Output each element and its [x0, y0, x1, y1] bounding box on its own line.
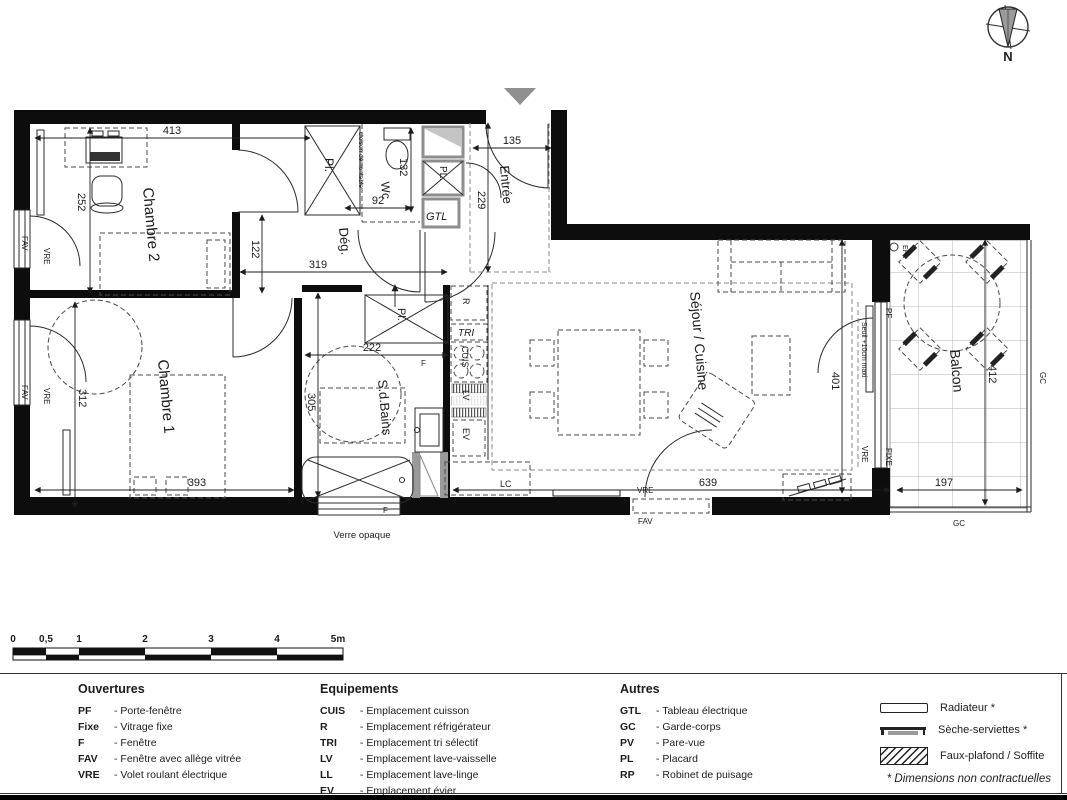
scale-tick: 4: [274, 634, 280, 645]
dim-92: 92: [372, 195, 384, 207]
dim-401: 401: [829, 372, 841, 390]
dim-229: 229: [475, 191, 487, 209]
seuil-note: Seuil +10cm maxi: [860, 322, 867, 378]
legend-autres: Autres GTL- Tableau électrique GC- Garde…: [620, 682, 753, 783]
room-label-chambre2: Chambre 2: [139, 187, 162, 262]
room-label-degagement: Dég.: [336, 227, 353, 256]
toilet-tank: [384, 128, 410, 140]
legend-item: F- Fenêtre: [78, 735, 241, 751]
pf-label: PF: [884, 308, 893, 318]
evier-label: EV: [461, 428, 471, 440]
legend-section-title: Autres: [620, 682, 753, 696]
room-label-entree: Entrée: [497, 165, 515, 204]
dim-222: 222: [363, 342, 381, 354]
dim-197: 197: [935, 477, 953, 489]
room-label-chambre1: Chambre 1: [154, 359, 177, 434]
lv-label: LV: [461, 390, 471, 400]
bathroom-door: [412, 452, 448, 498]
legend-symbol-faux-plafond: Faux-plafond / Soffite: [880, 747, 1044, 765]
lc-label: LC: [500, 479, 512, 489]
dim-135: 135: [503, 135, 521, 147]
chambre2-furniture: [37, 128, 230, 295]
legend-item: Fixe- Vitrage fixe: [78, 719, 241, 735]
tri-label: TRI: [458, 328, 474, 339]
fridge-label: R: [461, 298, 471, 305]
dim-252: 252: [75, 193, 87, 211]
towel-rail-swatch-icon: [880, 724, 926, 736]
legend-item: VRE- Volet roulant électrique: [78, 767, 241, 783]
room-label-sdb: S.d.Bains: [375, 379, 395, 436]
entrance-arrow-icon: [504, 88, 536, 105]
room-label-sejour: Séjour / Cuisine: [687, 291, 712, 391]
vre-label: VRE: [42, 248, 51, 264]
washbasin: [415, 408, 444, 452]
fixe-label: FIXE: [884, 448, 893, 466]
dim-122: 122: [249, 240, 261, 258]
ep-label: EP: [901, 245, 908, 255]
vre-label: VRE: [860, 446, 869, 462]
dim-305: 305: [305, 393, 317, 411]
kitchen-strip: R TRI CUIS LV EV LC: [445, 285, 530, 495]
bathtub: [302, 457, 413, 503]
radiator-swatch-icon: [880, 703, 928, 713]
sejour-furniture: [530, 240, 851, 500]
legend-item: PF- Porte-fenêtre: [78, 703, 241, 719]
legend: Ouvertures PF- Porte-fenêtre Fixe- Vitra…: [0, 673, 1067, 794]
floor-plan-page: N: [0, 0, 1067, 800]
window-f-bathroom: F Verre opaque: [318, 497, 400, 541]
gtl-label: GTL: [426, 211, 447, 223]
dimensions: 413 252 122 319 132 92 135 229 312 393 2…: [35, 123, 1022, 508]
legend-item: CUIS- Emplacement cuisson: [320, 703, 545, 719]
bottom-rule: [0, 793, 1067, 794]
coffee-table: [752, 336, 790, 395]
radiator: [553, 490, 620, 496]
dimensions-disclaimer: * Dimensions non contractuelles: [887, 773, 1051, 785]
radiator: [63, 430, 70, 495]
scale-tick: 5m: [331, 634, 346, 645]
f-label: F: [383, 506, 388, 515]
sofa: [718, 240, 845, 292]
legend-item: PL- Placard: [620, 751, 753, 767]
verre-opaque-note: Verre opaque: [333, 530, 390, 541]
bed-double: [130, 375, 225, 498]
soffit-zone: [492, 283, 852, 470]
legend-item: R- Emplacement réfrigérateur: [320, 719, 545, 735]
closet-top: Pl.: [305, 126, 360, 215]
dim-413: 413: [163, 125, 181, 137]
closet-label: Pl.: [322, 158, 336, 172]
gc-label: GC: [1038, 372, 1047, 384]
armchair: [677, 371, 756, 450]
scale-tick: 1: [76, 634, 82, 645]
legend-equipements: Equipements CUIS- Emplacement cuisson R-…: [320, 682, 545, 800]
bed-single: [100, 233, 230, 295]
bottom-black-bar: [0, 795, 1067, 800]
gc-label: GC: [953, 519, 965, 528]
legend-section-title: Equipements: [320, 682, 545, 696]
legend-item: FAV- Fenêtre avec allège vitrée: [78, 751, 241, 767]
dim-312: 312: [76, 389, 88, 407]
utility-column: PL. GTL: [423, 127, 501, 227]
scale-tick: 2: [142, 634, 148, 645]
fav-label: FAV: [20, 385, 29, 400]
legend-item: RP- Robinet de puisage: [620, 767, 753, 783]
fav-label: FAV: [638, 517, 653, 526]
scale-tick: 3: [208, 634, 214, 645]
legend-item: PV- Pare-vue: [620, 735, 753, 751]
legend-item: GC- Garde-corps: [620, 719, 753, 735]
cuisson-label: CUIS: [460, 346, 470, 368]
legend-symbol-radiator: Radiateur *: [880, 702, 995, 714]
closet-label: PL.: [437, 166, 448, 181]
legend-ouvertures: Ouvertures PF- Porte-fenêtre Fixe- Vitra…: [78, 682, 241, 783]
hatch-swatch-icon: [880, 747, 928, 765]
dim-412: 412: [986, 365, 998, 383]
north-compass: N: [986, 5, 1030, 64]
legend-section-title: Ouvertures: [78, 682, 241, 696]
desk-chair: [92, 176, 122, 206]
closet-label: Pl.: [395, 308, 407, 321]
legend-item: TRI- Emplacement tri sélectif: [320, 735, 545, 751]
scale-tick: 0: [10, 634, 16, 645]
dining-table: [558, 330, 640, 435]
dim-639: 639: [699, 477, 717, 489]
dim-132: 132: [397, 158, 409, 176]
legend-right-border: [1061, 674, 1062, 793]
turning-circle: [48, 300, 142, 394]
dim-319: 319: [309, 259, 327, 271]
legend-symbol-seche-serviettes: Sèche-serviettes *: [880, 724, 1027, 736]
scale-bar: 0 0,5 1 2 3 4 5m: [10, 634, 345, 660]
f-label: F: [421, 359, 426, 368]
vre-label: VRE: [42, 388, 51, 404]
dim-393: 393: [188, 477, 206, 489]
scale-tick: 0,5: [39, 634, 53, 645]
legend-item: LV- Emplacement lave-vaisselle: [320, 751, 545, 767]
fav-label: FAV: [20, 236, 29, 251]
legend-item: GTL- Tableau électrique: [620, 703, 753, 719]
compass-north-label: N: [1003, 49, 1012, 64]
window-fav-chambre2: FAV VRE: [14, 210, 80, 268]
radiator-diagonal: [783, 474, 851, 500]
legend-item: LL- Emplacement lave-linge: [320, 767, 545, 783]
radiator: [37, 130, 44, 215]
